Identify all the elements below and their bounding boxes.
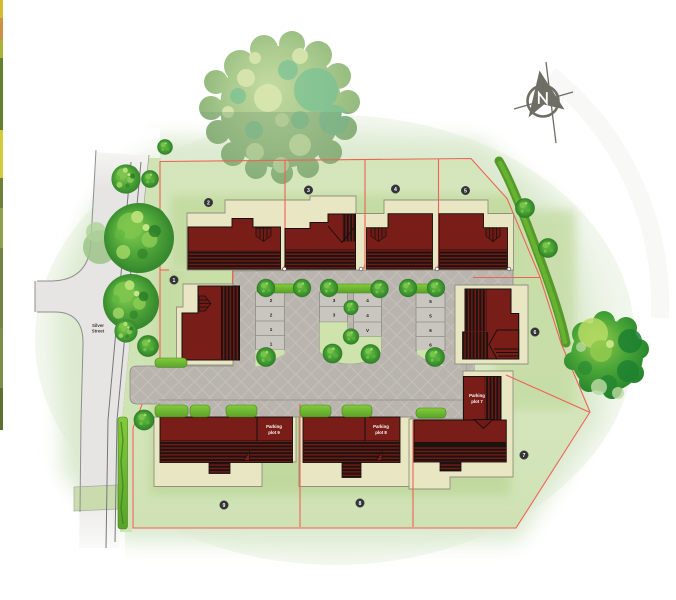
svg-text:Silver: Silver	[92, 323, 104, 328]
svg-text:2: 2	[270, 298, 273, 303]
svg-text:9: 9	[223, 503, 226, 509]
svg-text:6: 6	[534, 330, 537, 336]
svg-text:1: 1	[270, 342, 273, 347]
svg-text:4: 4	[366, 313, 369, 318]
svg-text:6: 6	[429, 328, 432, 333]
svg-text:1: 1	[270, 327, 273, 332]
svg-text:plot 7: plot 7	[471, 399, 483, 404]
svg-text:3: 3	[333, 313, 336, 318]
svg-text:Street: Street	[92, 329, 105, 334]
svg-text:5: 5	[429, 314, 432, 319]
svg-text:Parking: Parking	[266, 424, 282, 429]
svg-text:4: 4	[394, 187, 397, 193]
svg-text:2: 2	[270, 313, 273, 318]
svg-text:7: 7	[523, 453, 526, 459]
svg-text:Parking: Parking	[469, 393, 485, 398]
svg-text:1: 1	[173, 278, 176, 284]
svg-text:6: 6	[429, 343, 432, 348]
svg-text:plot 8: plot 8	[375, 430, 387, 435]
svg-text:3: 3	[333, 298, 336, 303]
svg-text:3: 3	[307, 188, 310, 194]
svg-text:5: 5	[429, 299, 432, 304]
svg-text:Parking: Parking	[373, 424, 389, 429]
svg-text:plot 9: plot 9	[268, 430, 280, 435]
svg-text:4: 4	[366, 298, 369, 303]
svg-text:8: 8	[359, 501, 362, 507]
svg-text:5: 5	[464, 189, 467, 195]
svg-text:2: 2	[207, 201, 210, 207]
